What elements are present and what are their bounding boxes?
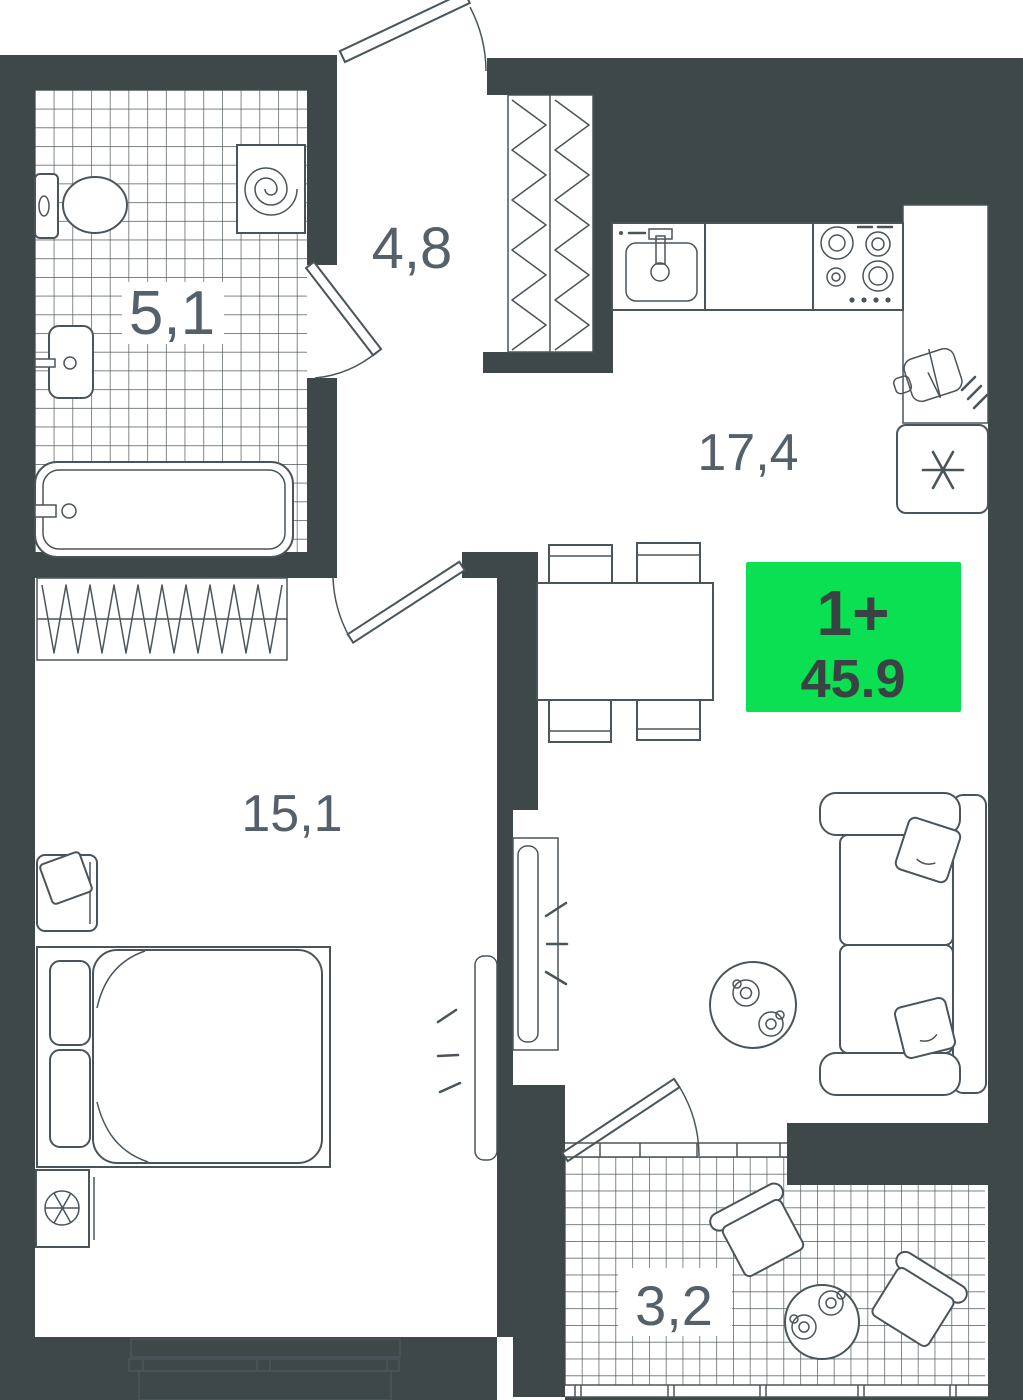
wall-wardrobe-bottom (483, 352, 613, 373)
room-label-kitchen-living: 17,4 (697, 424, 798, 482)
wall-balcony-left (513, 1125, 565, 1397)
floor-plan-canvas: 5,1 4,8 17,4 15,1 3,2 1+ 45.9 (0, 0, 1023, 1400)
toilet-icon (35, 174, 127, 238)
dining-chair (637, 700, 700, 740)
blanket (93, 950, 322, 1163)
pillow (50, 961, 90, 1045)
sofa-icon (820, 793, 986, 1095)
wall-living-balcony-left (497, 1085, 565, 1125)
washing-machine-icon (237, 145, 305, 233)
apartment-type-label: 1+ (817, 577, 890, 649)
room-label-bathroom: 5,1 (129, 279, 215, 348)
dining-chair (549, 545, 612, 585)
room-label-balcony: 3,2 (635, 1274, 713, 1337)
wall-kitchen-top (593, 95, 903, 223)
bed-icon (37, 947, 330, 1167)
dining-table (537, 583, 713, 700)
dining-chair (637, 543, 700, 585)
wall-left (0, 55, 35, 1400)
wall-top-right (487, 58, 1023, 95)
wall-bedroom-bottom (35, 1337, 497, 1400)
sofa-pillow (893, 996, 956, 1059)
coffee-table-icon (710, 962, 796, 1048)
apartment-badge: 1+ 45.9 (746, 562, 961, 712)
wall-bathroom-upper (307, 90, 337, 265)
pillow (50, 1050, 90, 1147)
apartment-total-area: 45.9 (800, 649, 905, 709)
balcony-table-icon (785, 1285, 859, 1359)
bathtub-icon (35, 462, 293, 557)
desk-icon (37, 851, 97, 931)
wall-bedroom-living-thin (497, 810, 513, 1337)
fan-vent-icon (36, 1170, 94, 1247)
fridge-icon (897, 425, 988, 513)
room-label-hallway: 4,8 (372, 216, 453, 281)
wall-bedroom-living-upper (497, 578, 538, 810)
wall-wardrobe-right (593, 223, 613, 373)
room-label-bedroom: 15,1 (241, 785, 342, 843)
floor-plan: 5,1 4,8 17,4 15,1 3,2 1+ 45.9 (0, 0, 1023, 1400)
wall-living-balcony-right (787, 1123, 988, 1185)
wall-top-left (0, 55, 337, 90)
wall-bedroom-door-stub (462, 552, 538, 578)
wall-right (988, 95, 1023, 1400)
wall-kitchen-corner (903, 95, 988, 205)
wall-bathroom-lower (307, 378, 337, 578)
dining-chair (549, 700, 611, 742)
